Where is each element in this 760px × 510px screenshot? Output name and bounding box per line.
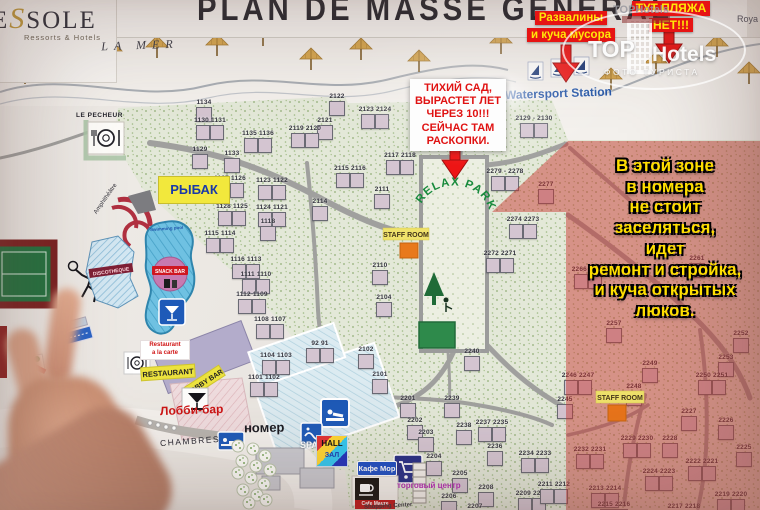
map-photo: RELAX PARK DISCOTHEQUE <box>0 0 760 510</box>
ruins-line-2: и куча мусора <box>527 28 615 42</box>
annotation-quiet-garden: ТИХИЙ САД, ВЫРАСТЕТ ЛЕТ ЧЕРЕЗ 10!!! СЕЙЧ… <box>410 79 506 151</box>
no-beach-line-2: НЕТ!!! <box>649 18 693 33</box>
no-beach-line-1: ТУТ ПЛЯЖА <box>632 1 711 16</box>
annotation-red-zone: В этой зоне в номера не стоит заселяться… <box>570 156 760 322</box>
svg-text:STAFF ROOM: STAFF ROOM <box>597 395 643 402</box>
annotation-no-beach: ТУТ ПЛЯЖА НЕТ!!! <box>626 0 716 34</box>
ruins-arrow <box>553 45 579 82</box>
ruins-line-1: Развалины <box>535 11 607 25</box>
annotation-ruins: Развалины и куча мусора <box>518 9 624 43</box>
